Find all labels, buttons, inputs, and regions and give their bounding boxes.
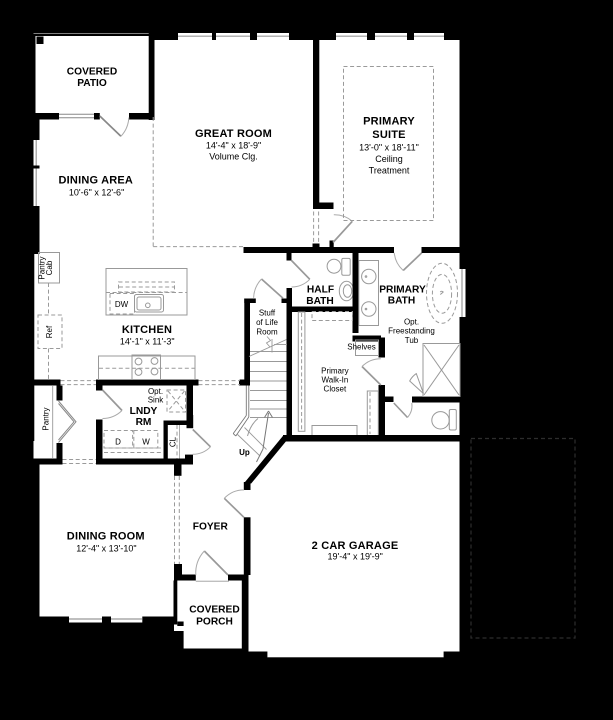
svg-text:Sink: Sink bbox=[148, 395, 165, 404]
svg-text:GREAT ROOM: GREAT ROOM bbox=[195, 128, 272, 140]
svg-text:19'-4" x 19'-9": 19'-4" x 19'-9" bbox=[328, 552, 383, 562]
svg-text:Volume Clg.: Volume Clg. bbox=[209, 152, 258, 162]
svg-text:KITCHEN: KITCHEN bbox=[122, 324, 172, 336]
svg-text:Up: Up bbox=[239, 448, 250, 457]
svg-text:of Life: of Life bbox=[256, 318, 278, 327]
svg-text:LNDY: LNDY bbox=[130, 406, 158, 417]
svg-text:Pantry: Pantry bbox=[42, 407, 51, 430]
svg-text:Tub: Tub bbox=[405, 336, 419, 345]
svg-text:Opt.: Opt. bbox=[404, 318, 419, 327]
svg-text:12'-4" x 13'-10": 12'-4" x 13'-10" bbox=[76, 544, 136, 554]
svg-text:FOYER: FOYER bbox=[193, 522, 229, 533]
svg-text:Ref: Ref bbox=[45, 325, 54, 338]
svg-text:PRIMARY: PRIMARY bbox=[363, 115, 415, 127]
svg-text:BATH: BATH bbox=[388, 295, 416, 306]
svg-text:DINING AREA: DINING AREA bbox=[59, 175, 134, 187]
svg-text:PATIO: PATIO bbox=[77, 78, 107, 89]
svg-text:Primary: Primary bbox=[321, 367, 349, 376]
svg-text:Room: Room bbox=[256, 328, 278, 337]
svg-text:COVERED: COVERED bbox=[189, 605, 239, 616]
svg-text:2 CAR GARAGE: 2 CAR GARAGE bbox=[312, 540, 399, 552]
svg-text:Shelves: Shelves bbox=[347, 343, 375, 352]
svg-text:RM: RM bbox=[136, 417, 152, 428]
svg-text:PRIMARY: PRIMARY bbox=[379, 284, 426, 295]
svg-text:Stuff: Stuff bbox=[259, 308, 276, 317]
svg-text:BATH: BATH bbox=[306, 296, 334, 307]
svg-text:Freestanding: Freestanding bbox=[388, 327, 435, 336]
svg-text:CL: CL bbox=[169, 436, 178, 447]
svg-text:DINING ROOM: DINING ROOM bbox=[67, 531, 145, 543]
svg-text:Treatment: Treatment bbox=[369, 166, 410, 176]
svg-text:D: D bbox=[115, 438, 121, 447]
svg-text:Ceiling: Ceiling bbox=[375, 154, 403, 164]
svg-text:14'-1" x 11'-3": 14'-1" x 11'-3" bbox=[120, 337, 175, 347]
svg-text:Closet: Closet bbox=[324, 385, 347, 394]
svg-text:10'-6" x 12'-6": 10'-6" x 12'-6" bbox=[69, 188, 124, 198]
svg-text:14'-4" x 18'-9": 14'-4" x 18'-9" bbox=[206, 141, 261, 151]
svg-text:13'-0" x 18'-11": 13'-0" x 18'-11" bbox=[359, 142, 419, 152]
svg-text:HALF: HALF bbox=[307, 285, 334, 296]
svg-text:SUITE: SUITE bbox=[372, 129, 405, 141]
svg-text:Walk-In: Walk-In bbox=[321, 376, 348, 385]
svg-text:DW: DW bbox=[115, 300, 129, 309]
svg-text:COVERED: COVERED bbox=[67, 66, 117, 77]
svg-text:PORCH: PORCH bbox=[196, 617, 233, 628]
svg-text:W: W bbox=[142, 438, 150, 447]
